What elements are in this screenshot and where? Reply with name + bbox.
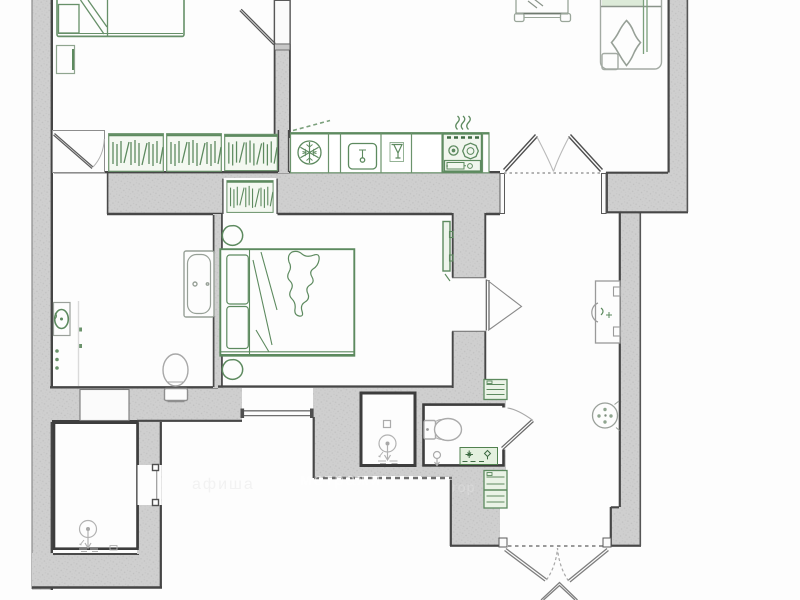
svg-text:афиша: афиша bbox=[192, 476, 255, 493]
svg-text:метражи: метражи bbox=[300, 470, 382, 489]
svg-text:гор: гор bbox=[452, 479, 475, 495]
